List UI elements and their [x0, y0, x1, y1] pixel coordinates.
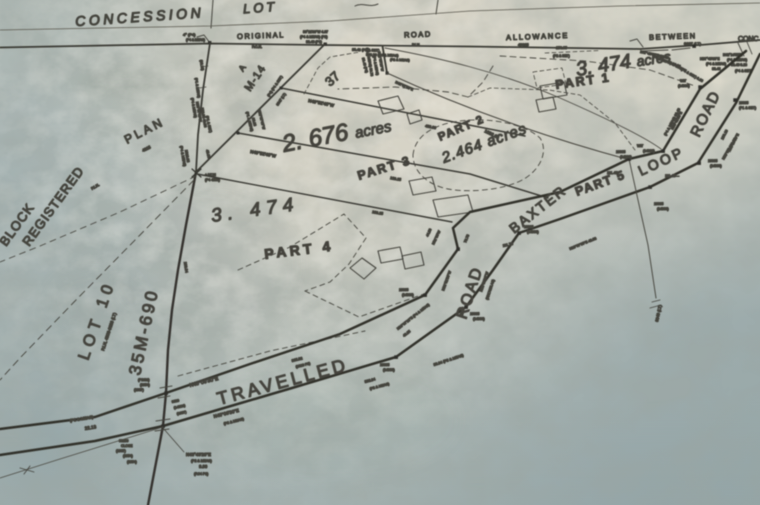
svg-text:10985: 10985 [616, 150, 626, 154]
svg-text:ROAD: ROAD [404, 30, 432, 40]
svg-text:156.05: 156.05 [556, 46, 567, 50]
svg-text:10985: 10985 [399, 288, 409, 292]
svg-text:10985: 10985 [739, 101, 749, 105]
svg-text:(14089): (14089) [620, 155, 632, 159]
svg-text:N43°43'20"E: N43°43'20"E [186, 452, 211, 457]
svg-text:111.45: 111.45 [607, 171, 617, 175]
svg-text:(14089): (14089) [402, 293, 414, 297]
svg-text:30.48 9.18: 30.48 9.18 [731, 63, 747, 67]
svg-text:(P2 & SET): (P2 & SET) [553, 54, 570, 58]
svg-text:CONC: CONC [738, 36, 759, 43]
svg-text:36°11'30"W 4.37: 36°11'30"W 4.37 [303, 30, 328, 34]
svg-text:(14089): (14089) [710, 164, 722, 168]
svg-text:(1987): (1987) [134, 388, 144, 392]
svg-text:10985: 10985 [654, 202, 664, 206]
svg-text:P.C.N.: P.C.N. [252, 45, 262, 49]
svg-text:(14089): (14089) [643, 149, 655, 153]
svg-text:10985: 10985 [470, 312, 480, 316]
svg-text:(P1 & SET): (P1 & SET) [739, 106, 756, 110]
svg-text:(P4 & MEAS): (P4 & MEAS) [186, 38, 205, 42]
svg-text:(2654): (2654) [123, 454, 133, 458]
svg-text:(14089): (14089) [473, 317, 485, 321]
svg-text:(P2 & MEAS): (P2 & MEAS) [390, 58, 410, 63]
svg-text:ORIGINAL: ORIGINAL [237, 30, 285, 41]
svg-text:(14089): (14089) [657, 207, 669, 211]
svg-text:(P4 & MEAS): (P4 & MEAS) [706, 62, 726, 66]
svg-text:CLOSE: CLOSE [121, 444, 133, 448]
svg-text:(14089): (14089) [678, 84, 690, 88]
svg-text:10985: 10985 [524, 225, 534, 229]
svg-text:(14089): (14089) [383, 368, 395, 372]
svg-text:9.90: 9.90 [199, 464, 208, 469]
svg-text:(1987): (1987) [116, 449, 126, 453]
svg-text:10985: 10985 [380, 363, 390, 367]
svg-text:30.48 (P1): 30.48 (P1) [306, 40, 322, 44]
svg-text:4° (P4): 4° (P4) [183, 32, 196, 37]
svg-text:(P.84 P2): (P.84 P2) [194, 472, 208, 476]
svg-text:49925: 49925 [518, 43, 529, 47]
svg-text:(P2 & MEAS): (P2 & MEAS) [191, 459, 212, 463]
svg-text:LOT: LOT [243, 0, 278, 16]
svg-text:(14089): (14089) [527, 230, 539, 234]
svg-text:P.I.N.: P.I.N. [412, 43, 421, 47]
svg-text:(P2&M): (P2&M) [138, 378, 150, 382]
svg-text:(P4 & MEAS) (P2): (P4 & MEAS) (P2) [300, 35, 328, 39]
svg-text:WIT: WIT [637, 144, 643, 148]
svg-text:(P4 & SET): (P4 & SET) [735, 69, 752, 73]
svg-text:30.48: 30.48 [712, 67, 721, 71]
svg-text:NB7°45'05"E: NB7°45'05"E [700, 57, 720, 61]
svg-text:111.40—: 111.40— [665, 174, 679, 178]
svg-text:(2654): (2654) [140, 383, 150, 387]
svg-text:10985: 10985 [708, 159, 718, 163]
svg-text:WIT: WIT [680, 79, 686, 83]
svg-text:(2854): (2854) [127, 460, 137, 464]
